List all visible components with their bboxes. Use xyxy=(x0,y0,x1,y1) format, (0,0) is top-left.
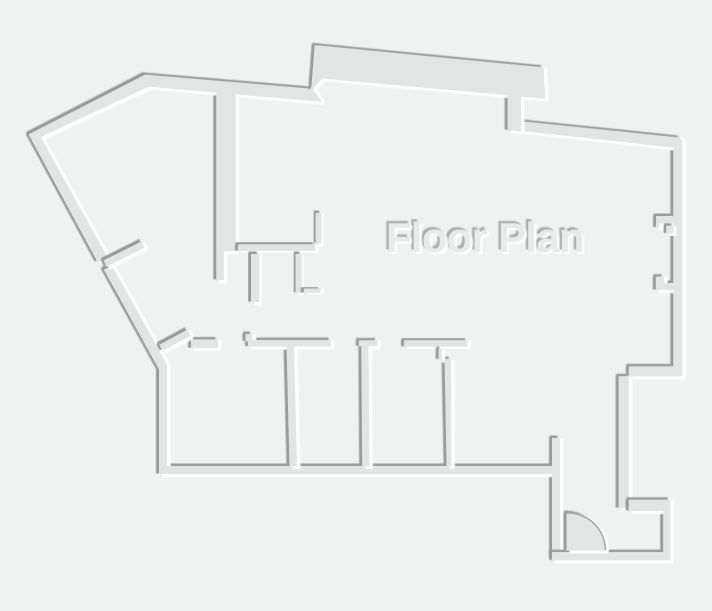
svg-text:Floor Plan: Floor Plan xyxy=(386,214,584,261)
